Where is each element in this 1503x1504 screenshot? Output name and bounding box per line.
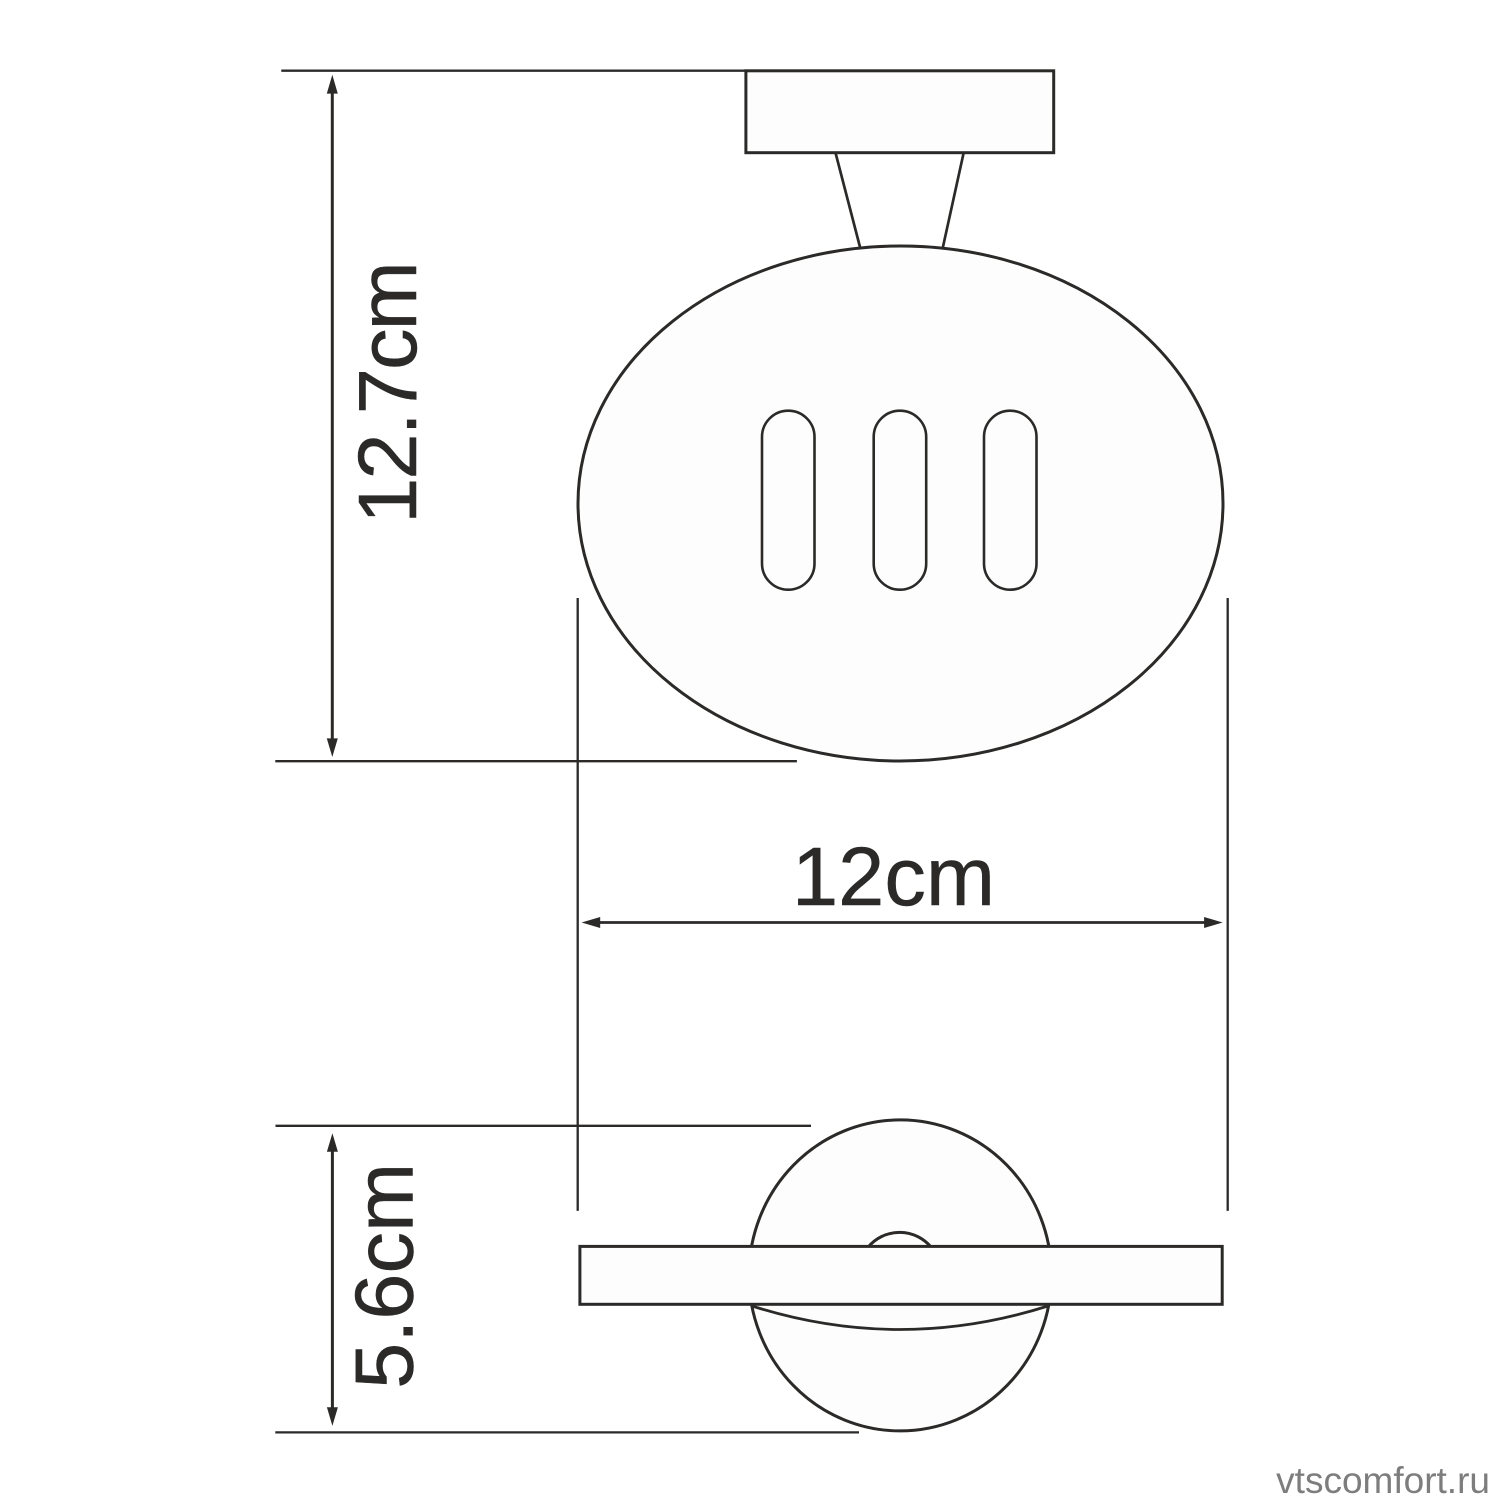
svg-text:vtscomfort.ru: vtscomfort.ru (1276, 1460, 1490, 1501)
svg-text:5.6cm: 5.6cm (338, 1163, 431, 1389)
svg-text:12.7cm: 12.7cm (341, 263, 434, 524)
svg-text:12cm: 12cm (792, 830, 995, 923)
